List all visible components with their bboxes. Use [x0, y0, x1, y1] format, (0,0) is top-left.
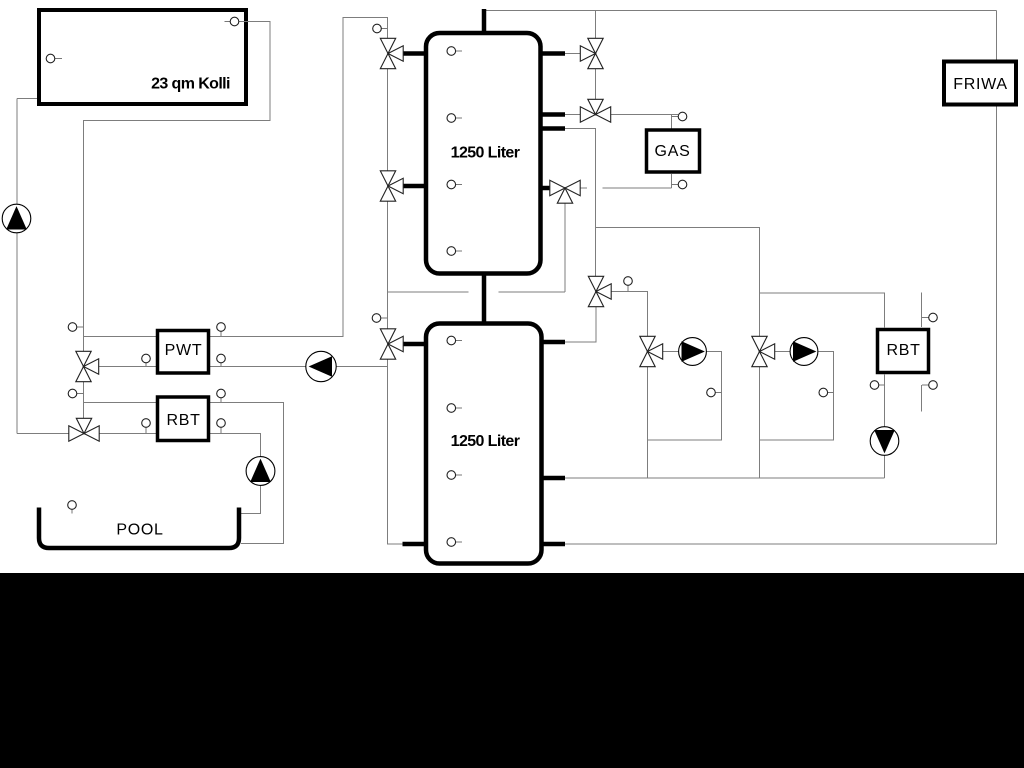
svg-text:1250 Liter: 1250 Liter [451, 433, 520, 450]
svg-text:1250 Liter: 1250 Liter [451, 145, 520, 162]
svg-text:RBT: RBT [886, 342, 920, 359]
svg-text:GAS: GAS [655, 143, 691, 160]
svg-text:FRIWA: FRIWA [953, 76, 1007, 93]
svg-text:PWT: PWT [165, 342, 203, 359]
svg-text:RBT: RBT [166, 412, 200, 429]
svg-text:23 qm Kolli: 23 qm Kolli [151, 76, 230, 93]
svg-text:POOL: POOL [116, 522, 163, 539]
